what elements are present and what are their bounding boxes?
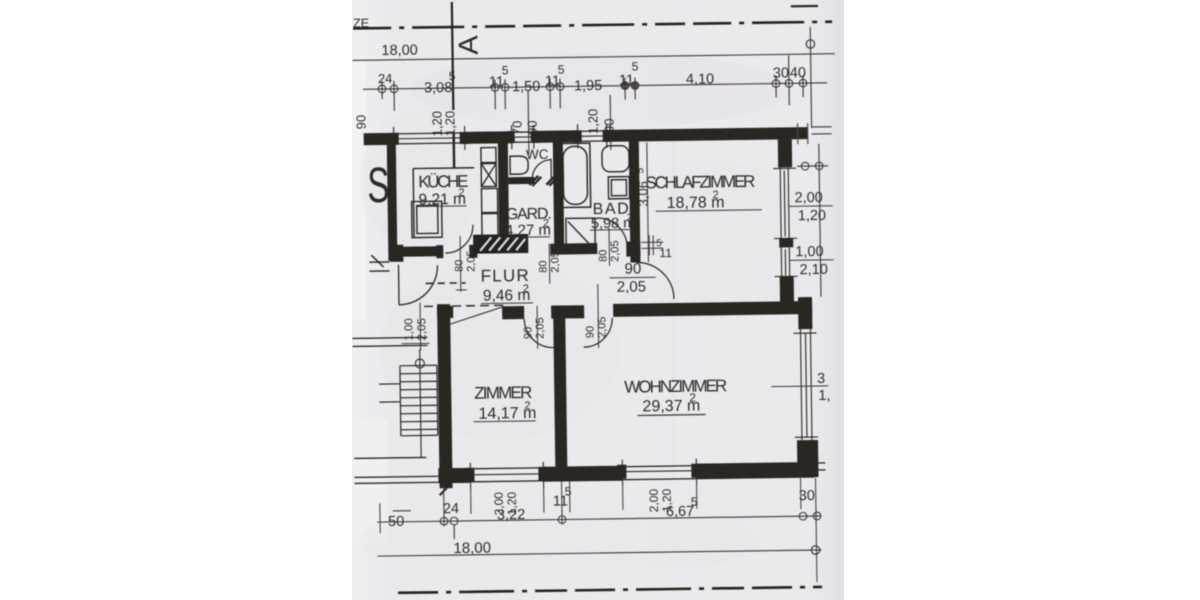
svg-text:2,10: 2,10 xyxy=(799,262,827,278)
svg-text:WOHNZIMMER: WOHNZIMMER xyxy=(624,376,727,396)
svg-text:WC: WC xyxy=(526,147,549,162)
svg-text:2: 2 xyxy=(627,213,633,224)
svg-text:FLUR: FLUR xyxy=(481,266,529,286)
svg-text:1,20: 1,20 xyxy=(660,488,674,512)
svg-text:4,10: 4,10 xyxy=(686,71,714,87)
svg-text:2: 2 xyxy=(712,189,718,201)
svg-text:2: 2 xyxy=(689,391,696,405)
svg-text:1,20: 1,20 xyxy=(505,491,519,515)
svg-text:80: 80 xyxy=(453,260,465,272)
svg-text:3,06: 3,06 xyxy=(635,181,650,207)
svg-text:5: 5 xyxy=(449,69,456,83)
svg-text:11: 11 xyxy=(659,246,672,260)
svg-text:90: 90 xyxy=(584,326,596,338)
svg-text:24: 24 xyxy=(443,501,459,517)
svg-text:1,50: 1,50 xyxy=(512,79,540,95)
svg-text:1,20: 1,20 xyxy=(798,208,826,224)
svg-text:S: S xyxy=(367,157,390,213)
svg-text:30: 30 xyxy=(799,488,815,504)
svg-text:2: 2 xyxy=(523,283,529,295)
svg-text:2,05: 2,05 xyxy=(617,278,646,295)
svg-text:1,20: 1,20 xyxy=(585,109,600,135)
svg-text:2,05: 2,05 xyxy=(534,317,546,339)
svg-text:A: A xyxy=(453,35,483,55)
svg-text:1,: 1, xyxy=(818,388,830,404)
svg-text:50: 50 xyxy=(388,514,404,530)
svg-text:1,00: 1,00 xyxy=(795,244,823,260)
svg-text:5: 5 xyxy=(632,59,639,73)
svg-text:80: 80 xyxy=(537,260,549,272)
svg-text:1,95: 1,95 xyxy=(574,78,602,94)
svg-text:1,20: 1,20 xyxy=(442,111,457,137)
svg-text:30: 30 xyxy=(773,65,789,81)
svg-text:18,00: 18,00 xyxy=(381,43,418,60)
svg-text:5: 5 xyxy=(691,495,698,509)
svg-text:90: 90 xyxy=(522,327,534,339)
svg-text:5: 5 xyxy=(565,484,572,498)
svg-text:2: 2 xyxy=(524,400,530,412)
svg-text:5: 5 xyxy=(558,62,565,76)
svg-text:80: 80 xyxy=(597,250,609,262)
svg-text:2: 2 xyxy=(458,187,464,199)
svg-text:90: 90 xyxy=(353,115,368,130)
svg-text:3: 3 xyxy=(817,371,825,387)
svg-text:5: 5 xyxy=(502,63,509,77)
svg-text:2,05: 2,05 xyxy=(609,240,621,262)
svg-text:40: 40 xyxy=(790,65,806,81)
svg-text:2,05: 2,05 xyxy=(549,251,561,273)
svg-text:2,05: 2,05 xyxy=(465,250,477,272)
svg-text:2: 2 xyxy=(543,218,549,230)
svg-text:SCHLAFZIMMER: SCHLAFZIMMER xyxy=(645,172,755,193)
svg-text:11: 11 xyxy=(619,73,634,89)
svg-text:90: 90 xyxy=(624,260,641,277)
svg-text:24: 24 xyxy=(378,71,393,86)
svg-text:5: 5 xyxy=(635,167,646,173)
svg-text:2,00: 2,00 xyxy=(794,190,822,206)
